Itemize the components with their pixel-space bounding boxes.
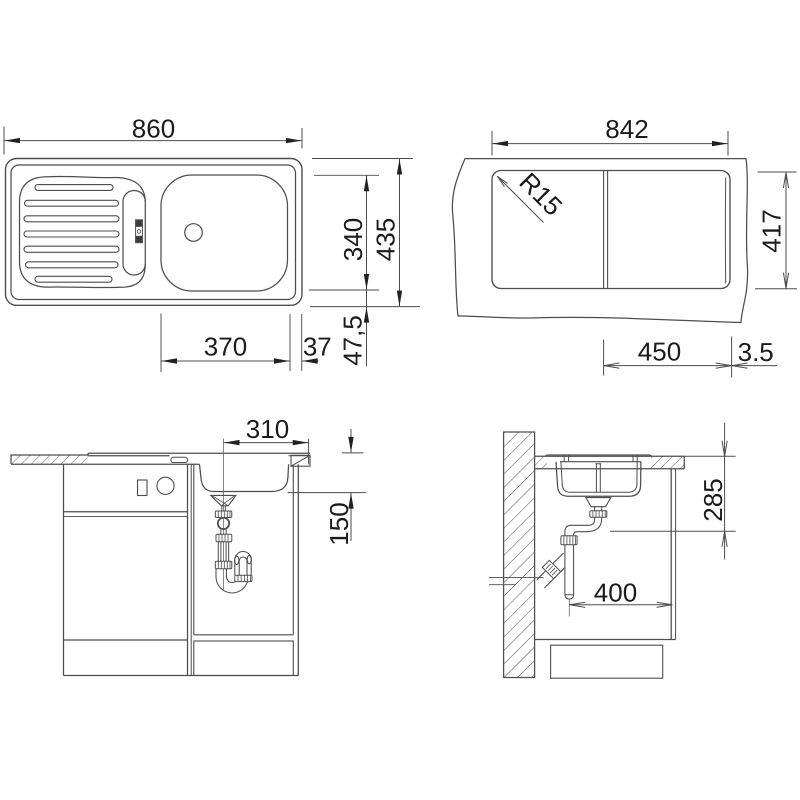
svg-text:37: 37 xyxy=(303,332,332,362)
svg-text:285: 285 xyxy=(698,478,728,521)
svg-text:47,5: 47,5 xyxy=(338,315,368,366)
svg-text:R15: R15 xyxy=(514,167,569,222)
svg-text:435: 435 xyxy=(371,218,401,261)
svg-text:3.5: 3.5 xyxy=(738,337,774,367)
svg-text:400: 400 xyxy=(594,577,637,607)
svg-text:842: 842 xyxy=(605,114,648,144)
svg-text:450: 450 xyxy=(638,336,681,366)
svg-text:340: 340 xyxy=(338,218,368,261)
svg-text:150: 150 xyxy=(324,502,354,545)
svg-text:860: 860 xyxy=(132,114,175,144)
svg-text:370: 370 xyxy=(204,332,247,362)
svg-text:310: 310 xyxy=(246,414,289,444)
svg-text:417: 417 xyxy=(757,209,787,252)
